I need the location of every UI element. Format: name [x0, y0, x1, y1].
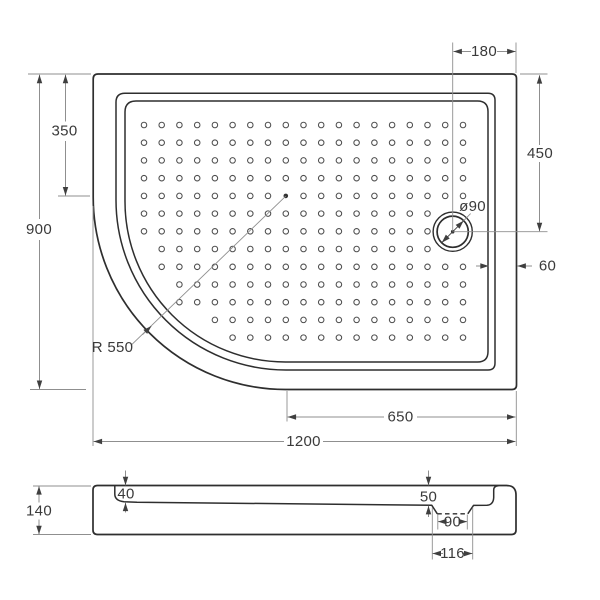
anti-slip-dot — [318, 264, 324, 270]
anti-slip-dot — [354, 193, 360, 199]
dim-450-label: 450 — [527, 145, 553, 162]
anti-slip-dot — [318, 335, 324, 341]
dim-116-label: 116 — [440, 545, 465, 562]
dim-radius-550: R 550 — [92, 196, 286, 356]
anti-slip-dot — [141, 229, 147, 235]
anti-slip-dot — [460, 264, 466, 270]
anti-slip-dot — [301, 193, 307, 199]
anti-slip-dot — [230, 158, 236, 164]
anti-slip-dot — [336, 335, 342, 341]
anti-slip-dot — [372, 246, 378, 252]
anti-slip-dot — [372, 193, 378, 199]
anti-slip-dot — [194, 193, 200, 199]
dim-50-label: 50 — [420, 488, 437, 505]
anti-slip-dot — [372, 175, 378, 181]
anti-slip-dot — [407, 282, 413, 288]
anti-slip-dot — [283, 211, 289, 217]
anti-slip-dot — [159, 211, 165, 217]
anti-slip-dot — [177, 264, 183, 270]
anti-slip-dot — [336, 158, 342, 164]
dim-1200: 1200 — [94, 433, 516, 450]
anti-slip-dot — [283, 335, 289, 341]
anti-slip-dot — [265, 229, 271, 235]
anti-slip-dot — [318, 122, 324, 128]
anti-slip-dot — [248, 264, 254, 270]
dim-40: 40 — [117, 471, 134, 513]
anti-slip-dot — [265, 335, 271, 341]
anti-slip-dot — [230, 299, 236, 305]
anti-slip-dot — [460, 282, 466, 288]
anti-slip-dot — [354, 246, 360, 252]
anti-slip-dot — [283, 299, 289, 305]
anti-slip-dot — [159, 140, 165, 146]
anti-slip-dot — [407, 211, 413, 217]
anti-slip-dot — [354, 264, 360, 270]
anti-slip-dot — [425, 122, 431, 128]
anti-slip-dot — [336, 282, 342, 288]
anti-slip-dot — [336, 193, 342, 199]
anti-slip-dot — [301, 299, 307, 305]
anti-slip-dot — [442, 299, 448, 305]
anti-slip-dot — [159, 193, 165, 199]
anti-slip-dot — [460, 335, 466, 341]
anti-slip-dot — [159, 246, 165, 252]
dim-650: 650 — [288, 409, 516, 426]
anti-slip-dot — [336, 317, 342, 323]
anti-slip-dot — [354, 175, 360, 181]
anti-slip-dot — [442, 122, 448, 128]
anti-slip-dot — [425, 175, 431, 181]
anti-slip-dot — [301, 140, 307, 146]
anti-slip-dot — [425, 264, 431, 270]
anti-slip-dot — [425, 317, 431, 323]
anti-slip-dot — [407, 122, 413, 128]
anti-slip-dot — [389, 229, 395, 235]
anti-slip-dot — [407, 229, 413, 235]
anti-slip-dot — [301, 229, 307, 235]
anti-slip-dot — [248, 211, 254, 217]
anti-slip-dot — [372, 158, 378, 164]
anti-slip-dot — [248, 282, 254, 288]
anti-slip-dot — [389, 211, 395, 217]
dimensions: 900 350 180 450 60 — [26, 43, 556, 563]
anti-slip-dot — [442, 158, 448, 164]
anti-slip-dot — [318, 229, 324, 235]
anti-slip-dot — [407, 193, 413, 199]
anti-slip-dot — [230, 211, 236, 217]
anti-slip-dot — [460, 175, 466, 181]
anti-slip-dot — [372, 229, 378, 235]
anti-slip-dot — [318, 299, 324, 305]
anti-slip-dot — [301, 282, 307, 288]
anti-slip-dot — [177, 122, 183, 128]
anti-slip-dot — [283, 246, 289, 252]
anti-slip-dot — [283, 229, 289, 235]
anti-slip-dot — [283, 264, 289, 270]
anti-slip-dot — [212, 282, 218, 288]
anti-slip-dot — [389, 299, 395, 305]
anti-slip-dot — [265, 158, 271, 164]
dim-450: 450 — [527, 75, 553, 231]
dim-180: 180 — [453, 43, 515, 60]
anti-slip-dot — [265, 140, 271, 146]
dim-180-label: 180 — [471, 43, 497, 60]
anti-slip-dot — [407, 317, 413, 323]
anti-slip-dot — [141, 211, 147, 217]
anti-slip-dot — [212, 229, 218, 235]
anti-slip-dot — [230, 317, 236, 323]
anti-slip-dot — [177, 158, 183, 164]
anti-slip-dot — [389, 140, 395, 146]
anti-slip-dot — [212, 211, 218, 217]
anti-slip-dot — [389, 335, 395, 341]
anti-slip-dot — [194, 122, 200, 128]
anti-slip-dot — [194, 211, 200, 217]
anti-slip-dot — [212, 122, 218, 128]
anti-slip-dot — [301, 246, 307, 252]
anti-slip-dot — [194, 158, 200, 164]
anti-slip-dot — [442, 140, 448, 146]
dim-350: 350 — [52, 75, 78, 196]
anti-slip-dot — [460, 140, 466, 146]
anti-slip-dot — [425, 158, 431, 164]
anti-slip-dot — [248, 122, 254, 128]
dim-900: 900 — [26, 75, 52, 389]
anti-slip-dot — [265, 299, 271, 305]
anti-slip-dot — [425, 282, 431, 288]
anti-slip-dot — [248, 229, 254, 235]
anti-slip-dot — [230, 193, 236, 199]
anti-slip-dot — [442, 335, 448, 341]
anti-slip-dot — [177, 246, 183, 252]
anti-slip-dot — [212, 175, 218, 181]
anti-slip-dot — [354, 122, 360, 128]
dim-350-label: 350 — [52, 123, 78, 140]
anti-slip-dot — [354, 229, 360, 235]
anti-slip-dot — [442, 264, 448, 270]
anti-slip-dot-pattern — [141, 122, 466, 340]
dim-drain-diameter-label: ø90 — [459, 198, 486, 215]
anti-slip-dot — [460, 299, 466, 305]
anti-slip-dot — [389, 175, 395, 181]
anti-slip-dot — [354, 299, 360, 305]
anti-slip-dot — [336, 211, 342, 217]
anti-slip-dot — [336, 140, 342, 146]
anti-slip-dot — [141, 158, 147, 164]
anti-slip-dot — [354, 282, 360, 288]
anti-slip-dot — [318, 193, 324, 199]
anti-slip-dot — [194, 264, 200, 270]
anti-slip-dot — [318, 317, 324, 323]
anti-slip-dot — [283, 317, 289, 323]
anti-slip-dot — [389, 317, 395, 323]
anti-slip-dot — [389, 282, 395, 288]
dim-900-label: 900 — [26, 221, 52, 238]
anti-slip-dot — [425, 193, 431, 199]
section-floor-profile — [115, 486, 499, 514]
anti-slip-dot — [248, 193, 254, 199]
anti-slip-dot — [212, 246, 218, 252]
anti-slip-dot — [230, 229, 236, 235]
anti-slip-dot — [283, 282, 289, 288]
anti-slip-dot — [407, 264, 413, 270]
anti-slip-dot — [265, 175, 271, 181]
anti-slip-dot — [230, 335, 236, 341]
technical-drawing-page: 900 350 180 450 60 — [0, 0, 600, 600]
dim-140: 140 — [26, 486, 52, 534]
anti-slip-dot — [442, 193, 448, 199]
anti-slip-dot — [159, 158, 165, 164]
anti-slip-dot — [248, 158, 254, 164]
anti-slip-dot — [301, 335, 307, 341]
anti-slip-dot — [194, 246, 200, 252]
anti-slip-dot — [425, 246, 431, 252]
anti-slip-dot — [177, 193, 183, 199]
anti-slip-dot — [336, 264, 342, 270]
anti-slip-dot — [177, 211, 183, 217]
anti-slip-dot — [212, 317, 218, 323]
anti-slip-dot — [265, 317, 271, 323]
anti-slip-dot — [159, 122, 165, 128]
anti-slip-dot — [318, 211, 324, 217]
anti-slip-dot — [194, 299, 200, 305]
anti-slip-dot — [318, 175, 324, 181]
anti-slip-dot — [283, 158, 289, 164]
dim-650-label: 650 — [388, 409, 414, 426]
anti-slip-dot — [301, 211, 307, 217]
anti-slip-dot — [407, 158, 413, 164]
anti-slip-dot — [212, 158, 218, 164]
dim-140-label: 140 — [26, 503, 52, 520]
anti-slip-dot — [372, 211, 378, 217]
anti-slip-dot — [283, 175, 289, 181]
anti-slip-dot — [248, 140, 254, 146]
anti-slip-dot — [194, 140, 200, 146]
anti-slip-dot — [212, 299, 218, 305]
anti-slip-dot — [265, 122, 271, 128]
anti-slip-dot — [336, 175, 342, 181]
anti-slip-dot — [212, 193, 218, 199]
anti-slip-dot — [425, 229, 431, 235]
anti-slip-dot — [336, 299, 342, 305]
anti-slip-dot — [230, 140, 236, 146]
anti-slip-dot — [230, 175, 236, 181]
anti-slip-dot — [336, 122, 342, 128]
dim-1200-label: 1200 — [286, 433, 321, 450]
anti-slip-dot — [141, 140, 147, 146]
anti-slip-dot — [177, 282, 183, 288]
anti-slip-dot — [248, 175, 254, 181]
anti-slip-dot — [248, 299, 254, 305]
anti-slip-dot — [407, 335, 413, 341]
anti-slip-dot — [301, 158, 307, 164]
anti-slip-dot — [442, 317, 448, 323]
anti-slip-dot — [265, 246, 271, 252]
dim-90-label: 90 — [444, 513, 461, 530]
anti-slip-dot — [442, 282, 448, 288]
anti-slip-dot — [318, 140, 324, 146]
anti-slip-dot — [159, 264, 165, 270]
anti-slip-dot — [301, 122, 307, 128]
anti-slip-dot — [372, 335, 378, 341]
anti-slip-dot — [389, 158, 395, 164]
anti-slip-dot — [372, 264, 378, 270]
anti-slip-dot — [230, 122, 236, 128]
anti-slip-dot — [407, 140, 413, 146]
anti-slip-dot — [283, 140, 289, 146]
anti-slip-dot — [372, 140, 378, 146]
anti-slip-dot — [265, 264, 271, 270]
anti-slip-dot — [425, 299, 431, 305]
anti-slip-dot — [141, 193, 147, 199]
dim-116: 116 — [433, 545, 473, 562]
anti-slip-dot — [372, 122, 378, 128]
anti-slip-dot — [407, 299, 413, 305]
anti-slip-dot — [460, 158, 466, 164]
anti-slip-dot — [194, 229, 200, 235]
anti-slip-dot — [248, 246, 254, 252]
anti-slip-dot — [301, 264, 307, 270]
anti-slip-dot — [194, 282, 200, 288]
anti-slip-dot — [425, 335, 431, 341]
anti-slip-dot — [425, 211, 431, 217]
anti-slip-dot — [177, 229, 183, 235]
anti-slip-dot — [159, 229, 165, 235]
anti-slip-dot — [389, 193, 395, 199]
anti-slip-dot — [159, 175, 165, 181]
anti-slip-dot — [230, 264, 236, 270]
anti-slip-dot — [372, 282, 378, 288]
anti-slip-dot — [318, 282, 324, 288]
anti-slip-dot — [248, 317, 254, 323]
anti-slip-dot — [372, 299, 378, 305]
shower-tray-technical-drawing: 900 350 180 450 60 — [0, 0, 600, 600]
dim-90: 90 — [438, 513, 467, 530]
anti-slip-dot — [141, 122, 147, 128]
anti-slip-dot — [425, 140, 431, 146]
anti-slip-dot — [177, 140, 183, 146]
anti-slip-dot — [212, 140, 218, 146]
anti-slip-dot — [389, 246, 395, 252]
dim-radius-550-label: R 550 — [92, 339, 134, 356]
anti-slip-dot — [194, 175, 200, 181]
anti-slip-dot — [265, 282, 271, 288]
anti-slip-dot — [407, 175, 413, 181]
anti-slip-dot — [301, 317, 307, 323]
anti-slip-dot — [460, 122, 466, 128]
anti-slip-dot — [318, 158, 324, 164]
anti-slip-dot — [354, 158, 360, 164]
anti-slip-dot — [177, 175, 183, 181]
anti-slip-dot — [301, 175, 307, 181]
dim-40-label: 40 — [117, 485, 134, 502]
anti-slip-dot — [336, 229, 342, 235]
anti-slip-dot — [230, 282, 236, 288]
anti-slip-dot — [354, 317, 360, 323]
anti-slip-dot — [407, 246, 413, 252]
dim-drain-diameter: ø90 — [442, 198, 486, 243]
anti-slip-dot — [141, 175, 147, 181]
anti-slip-dot — [372, 317, 378, 323]
anti-slip-dot — [354, 335, 360, 341]
anti-slip-dot — [442, 175, 448, 181]
anti-slip-dot — [460, 317, 466, 323]
anti-slip-dot — [389, 264, 395, 270]
dim-60-label: 60 — [539, 258, 556, 275]
anti-slip-dot — [354, 211, 360, 217]
anti-slip-dot — [389, 122, 395, 128]
anti-slip-dot — [354, 140, 360, 146]
anti-slip-dot — [283, 122, 289, 128]
anti-slip-dot — [265, 193, 271, 199]
anti-slip-dot — [336, 246, 342, 252]
anti-slip-dot — [318, 246, 324, 252]
anti-slip-dot — [248, 335, 254, 341]
